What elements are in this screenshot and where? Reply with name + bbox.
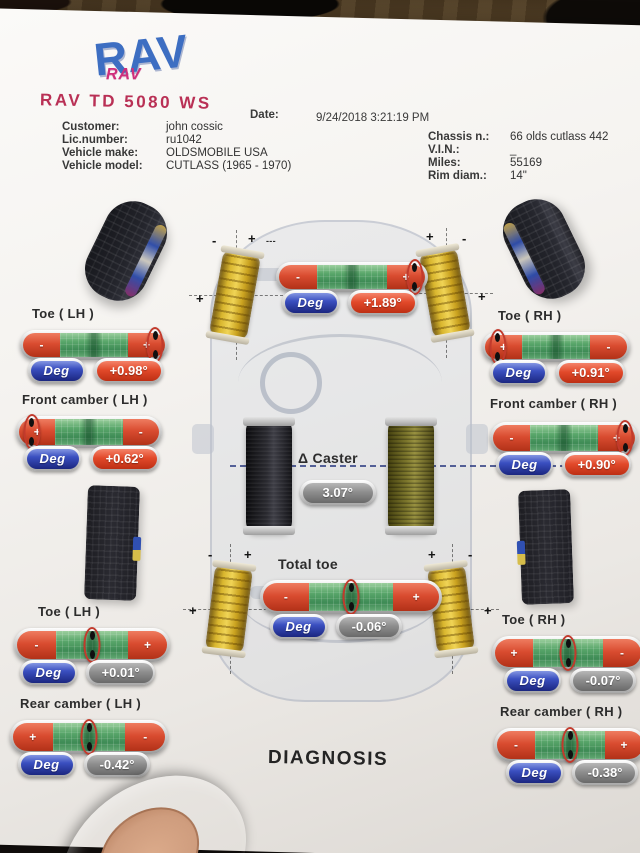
tread-photo-rear-left <box>84 485 140 601</box>
minus-zone: - <box>123 419 159 445</box>
rear-camber-rh-gauge: - + <box>494 728 640 762</box>
gauge-bar: + - <box>13 723 165 751</box>
wheel-front-left: - + + <box>204 242 268 348</box>
front-axle-toe-gauge: - + <box>276 262 428 292</box>
minus-sign: - <box>139 426 143 438</box>
wheel-front-right: + - + <box>414 240 478 346</box>
report-title: RAV TD 5080 WS <box>40 90 212 114</box>
in-spec-zone <box>60 333 128 357</box>
minus-zone: - <box>493 425 530 451</box>
plus-sign: + <box>29 731 36 743</box>
minus-zone: - <box>125 723 165 751</box>
rear-toe-lh-readout: Deg +0.01° <box>20 660 155 685</box>
gauge-indicator <box>84 627 101 663</box>
rim-diameter-label: Rim diam.: <box>428 170 510 182</box>
gauge-bar: - + <box>493 425 635 451</box>
value-badge: -0.42° <box>84 752 150 777</box>
chassis-label: Chassis n.: <box>428 131 510 143</box>
rav-logo: RAV RAV <box>86 34 156 96</box>
gauge-track: - + <box>493 425 635 451</box>
plus-sign: + <box>144 639 151 651</box>
value-badge: -0.06° <box>336 614 402 639</box>
in-spec-zone <box>317 265 387 289</box>
value-badge: +0.90° <box>562 452 631 477</box>
gauge-track: - + <box>279 265 425 289</box>
front-camber-rh-label: Front camber ( RH ) <box>490 396 617 411</box>
deg-badge-label: Deg <box>509 763 561 783</box>
gauge-bar: - + <box>17 631 167 659</box>
minus-sign: - <box>284 591 288 603</box>
front-toe-lh-readout: Deg +0.98° <box>28 358 163 383</box>
date-value: 9/24/2018 3:21:19 PM <box>316 112 429 124</box>
vehicle-make-label: Vehicle make: <box>62 147 166 159</box>
in-spec-zone <box>522 335 590 359</box>
license-row: Lic.number: ru1042 <box>62 134 202 146</box>
rear-camber-lh-label: Rear camber ( LH ) <box>20 696 141 711</box>
rear-toe-rh-readout: Deg -0.07° <box>504 668 636 693</box>
minus-zone: - <box>497 731 535 759</box>
minus-sign: - <box>296 271 300 283</box>
minus-zone: - <box>263 583 309 611</box>
minus-mark: - <box>212 234 216 247</box>
miles-row: Miles: 55169 <box>428 157 542 169</box>
report-content: RAV RAV RAV TD 5080 WS Date: 9/24/2018 3… <box>0 0 640 853</box>
customer-label: Customer: <box>62 121 166 133</box>
gauge-bar: + - <box>495 639 640 667</box>
rear-toe-rh-gauge: + - <box>492 636 640 670</box>
deg-badge-label: Deg <box>21 755 73 775</box>
tire-photo-front-right <box>493 189 595 309</box>
minus-sign: - <box>607 341 611 353</box>
minus-mark: - <box>208 548 212 561</box>
vehicle-model-value: CUTLASS (1965 - 1970) <box>166 160 291 172</box>
gauge-indicator <box>562 727 579 763</box>
plus-sign: + <box>510 647 517 659</box>
deg-badge: Deg <box>20 660 77 685</box>
rear-toe-lh-label: Toe ( LH ) <box>38 604 100 619</box>
front-toe-rh-readout: Deg +0.91° <box>490 360 625 385</box>
rear-camber-lh-gauge: + - <box>10 720 168 754</box>
gauge-bar: - + <box>279 265 425 289</box>
value-badge: -0.07° <box>570 668 636 693</box>
plus-sign: + <box>413 591 420 603</box>
value-badge-text: +0.98° <box>97 361 161 381</box>
plus-zone: + <box>605 731 640 759</box>
value-badge-text: -0.06° <box>339 617 400 637</box>
rear-toe-rh-label: Toe ( RH ) <box>502 612 565 627</box>
front-toe-rh-label: Toe ( RH ) <box>498 308 561 323</box>
caster-cylinder-right <box>388 420 434 532</box>
tire-photo-front-left <box>75 191 177 311</box>
minus-zone: - <box>590 335 627 359</box>
plus-mark: + <box>428 548 436 561</box>
value-badge-text: +0.90° <box>565 455 629 475</box>
plus-mark: + <box>484 604 492 617</box>
plus-zone: + <box>128 631 167 659</box>
rim-diameter-value: 14" <box>510 170 527 182</box>
total-toe-label: Total toe <box>278 556 338 572</box>
front-toe-lh-gauge: - + <box>20 330 168 360</box>
deg-badge: Deg <box>18 752 75 777</box>
in-spec-zone <box>530 425 598 451</box>
value-badge: +0.01° <box>86 660 155 685</box>
photo-of-alignment-report: RAV RAV RAV TD 5080 WS Date: 9/24/2018 3… <box>0 0 640 853</box>
right-sill <box>466 424 488 454</box>
plus-mark: + <box>244 548 252 561</box>
vehicle-model-row: Vehicle model: CUTLASS (1965 - 1970) <box>62 160 291 172</box>
gauge-track: + - <box>485 335 627 359</box>
plus-sign: + <box>621 739 628 751</box>
total-toe-gauge: - + <box>260 580 442 614</box>
in-spec-zone <box>55 419 122 445</box>
front-axle-toe-label: --- <box>266 236 276 246</box>
gauge-bar: - + <box>263 583 439 611</box>
miles-value: 55169 <box>510 157 542 169</box>
wheel-body <box>209 249 261 340</box>
diagnosis-heading: DIAGNOSIS <box>268 747 388 771</box>
value-badge: +1.89° <box>348 290 417 315</box>
value-badge-text: +0.01° <box>89 663 153 683</box>
front-camber-lh-gauge: + - <box>16 416 162 448</box>
customer-value: john cossic <box>166 121 223 133</box>
customer-row: Customer: john cossic <box>62 121 223 133</box>
gauge-indicator <box>560 635 577 671</box>
minus-sign: - <box>514 739 518 751</box>
wheel-rear-left: - + + <box>198 556 262 662</box>
front-camber-rh-readout: Deg +0.90° <box>496 452 631 477</box>
deg-badge-label: Deg <box>493 363 545 383</box>
value-badge-text: -0.42° <box>87 755 148 775</box>
gauge-bar: - + <box>23 333 165 357</box>
front-axle-toe-readout: Deg +1.89° <box>282 290 417 315</box>
minus-mark: - <box>462 232 466 245</box>
plus-mark: + <box>189 604 197 617</box>
total-toe-readout: Deg -0.06° <box>270 614 402 639</box>
vehicle-make-value: OLDSMOBILE USA <box>166 147 268 159</box>
rear-camber-rh-label: Rear camber ( RH ) <box>500 704 622 719</box>
plus-mark: + <box>196 292 204 305</box>
gauge-indicator <box>81 719 98 755</box>
gauge-bar: + - <box>19 419 159 445</box>
date-label: Date: <box>250 109 279 121</box>
front-camber-lh-readout: Deg +0.62° <box>24 446 159 471</box>
plus-zone: + <box>495 639 533 667</box>
plus-zone: + <box>13 723 53 751</box>
plus-mark: + <box>426 230 434 243</box>
front-toe-lh-label: Toe ( LH ) <box>32 306 94 321</box>
deg-badge: Deg <box>28 358 85 383</box>
deg-badge: Deg <box>506 760 563 785</box>
caster-cylinder-left <box>246 420 292 532</box>
caster-label: Δ Caster <box>298 450 358 466</box>
caster-readout: 3.07° <box>300 480 376 505</box>
deg-badge-label: Deg <box>27 449 79 469</box>
rear-toe-lh-gauge: - + <box>14 628 170 662</box>
deg-badge-label: Deg <box>499 455 551 475</box>
rav-logo-wordmark: RAV <box>106 66 142 84</box>
minus-zone: - <box>603 639 640 667</box>
deg-badge-label: Deg <box>273 617 325 637</box>
minus-sign: - <box>620 647 624 659</box>
deg-badge-label: Deg <box>31 361 83 381</box>
minus-zone: - <box>17 631 56 659</box>
value-badge-text: -0.38° <box>575 763 636 783</box>
front-toe-rh-gauge: + - <box>482 332 630 362</box>
gauge-track: - + <box>23 333 165 357</box>
front-camber-rh-gauge: - + <box>490 422 638 454</box>
plus-mark: + <box>478 290 486 303</box>
deg-badge-label: Deg <box>23 663 75 683</box>
gauge-indicator <box>617 420 634 456</box>
license-value: ru1042 <box>166 134 202 146</box>
value-badge: 3.07° <box>300 480 376 505</box>
value-badge: +0.98° <box>94 358 163 383</box>
gauge-bar: + - <box>485 335 627 359</box>
vin-row: V.I.N.: _ <box>428 144 516 156</box>
deg-badge-label: Deg <box>507 671 559 691</box>
minus-zone: - <box>279 265 317 289</box>
steering-wheel-outline <box>260 352 322 414</box>
deg-badge: Deg <box>496 452 553 477</box>
value-badge-text: +0.91° <box>559 363 623 383</box>
rim-diameter-row: Rim diam.: 14" <box>428 170 527 182</box>
deg-badge: Deg <box>24 446 81 471</box>
minus-mark: - <box>468 548 472 561</box>
front-camber-lh-label: Front camber ( LH ) <box>22 392 148 407</box>
value-badge: +0.62° <box>90 446 159 471</box>
value-badge: +0.91° <box>556 360 625 385</box>
deg-badge: Deg <box>282 290 339 315</box>
left-sill <box>192 424 214 454</box>
license-label: Lic.number: <box>62 134 166 146</box>
deg-badge-label: Deg <box>285 293 337 313</box>
vehicle-model-label: Vehicle model: <box>62 160 166 172</box>
plus-mark: + <box>248 232 256 245</box>
miles-label: Miles: <box>428 157 510 169</box>
plus-zone: + <box>393 583 439 611</box>
value-badge-text: +0.62° <box>93 449 157 469</box>
vehicle-make-row: Vehicle make: OLDSMOBILE USA <box>62 147 268 159</box>
vin-label: V.I.N.: <box>428 144 510 156</box>
gauge-indicator <box>343 579 360 615</box>
wheel-body <box>419 247 471 338</box>
minus-zone: - <box>23 333 60 357</box>
value-badge: -0.38° <box>572 760 638 785</box>
vin-value: _ <box>510 144 516 156</box>
minus-sign: - <box>143 731 147 743</box>
minus-sign: - <box>509 432 513 444</box>
rear-camber-lh-readout: Deg -0.42° <box>18 752 150 777</box>
value-badge-text: 3.07° <box>303 483 374 503</box>
minus-sign: - <box>35 639 39 651</box>
minus-sign: - <box>39 339 43 351</box>
gauge-indicator <box>23 414 40 450</box>
chassis-value: 66 olds cutlass 442 <box>510 131 608 143</box>
deg-badge: Deg <box>270 614 327 639</box>
wheel-body <box>205 564 253 654</box>
value-badge-text: -0.07° <box>573 671 634 691</box>
deg-badge: Deg <box>504 668 561 693</box>
value-badge-text: +1.89° <box>351 293 415 313</box>
rear-camber-rh-readout: Deg -0.38° <box>506 760 638 785</box>
deg-badge: Deg <box>490 360 547 385</box>
chassis-row: Chassis n.: 66 olds cutlass 442 <box>428 131 608 143</box>
tread-photo-rear-right <box>518 489 574 605</box>
gauge-bar: - + <box>497 731 640 759</box>
